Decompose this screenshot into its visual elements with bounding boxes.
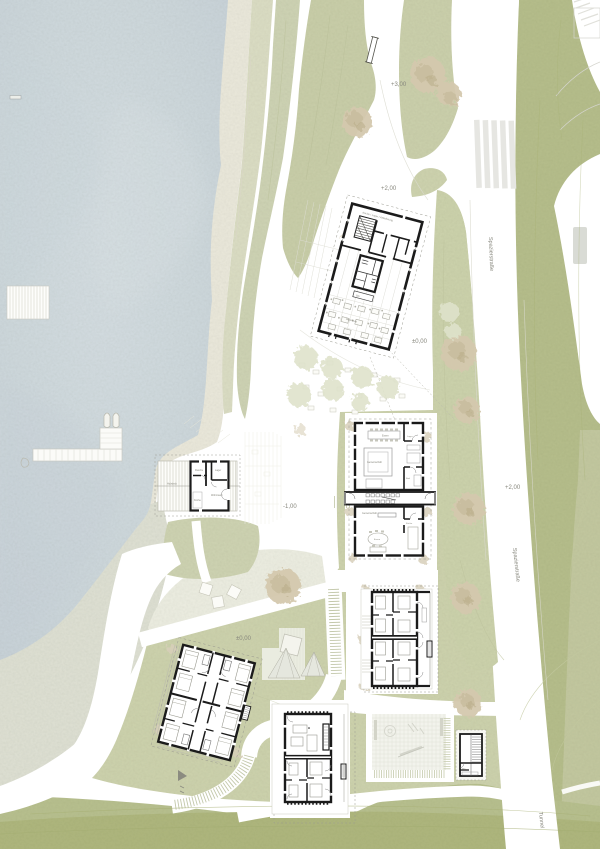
svg-text:-1,00: -1,00 — [283, 504, 297, 510]
svg-text:Küche: Küche — [194, 499, 201, 502]
svg-text:Lager: Lager — [407, 435, 413, 438]
svg-text:Gemeinschaft: Gemeinschaft — [367, 461, 382, 464]
svg-text:Essen: Essen — [374, 539, 381, 541]
svg-text:±0,00: ±0,00 — [236, 636, 252, 642]
svg-text:Essen: Essen — [382, 434, 389, 437]
svg-text:Dusche: Dusche — [195, 469, 204, 472]
svg-text:Wohnraum: Wohnraum — [211, 494, 223, 497]
svg-text:+2,00: +2,00 — [505, 485, 521, 491]
svg-text:Lager: Lager — [215, 469, 221, 472]
svg-text:+2,00: +2,00 — [381, 186, 397, 192]
svg-text:WC: WC — [462, 769, 466, 771]
svg-text:±0,00: ±0,00 — [412, 339, 428, 345]
svg-text:Küche: Küche — [406, 523, 413, 525]
svg-text:Spazierstraße: Spazierstraße — [487, 237, 494, 271]
svg-text:+3,00: +3,00 — [391, 82, 407, 88]
svg-text:Holzdeck: Holzdeck — [167, 483, 178, 486]
svg-text:Gemeinschaft: Gemeinschaft — [362, 512, 377, 515]
